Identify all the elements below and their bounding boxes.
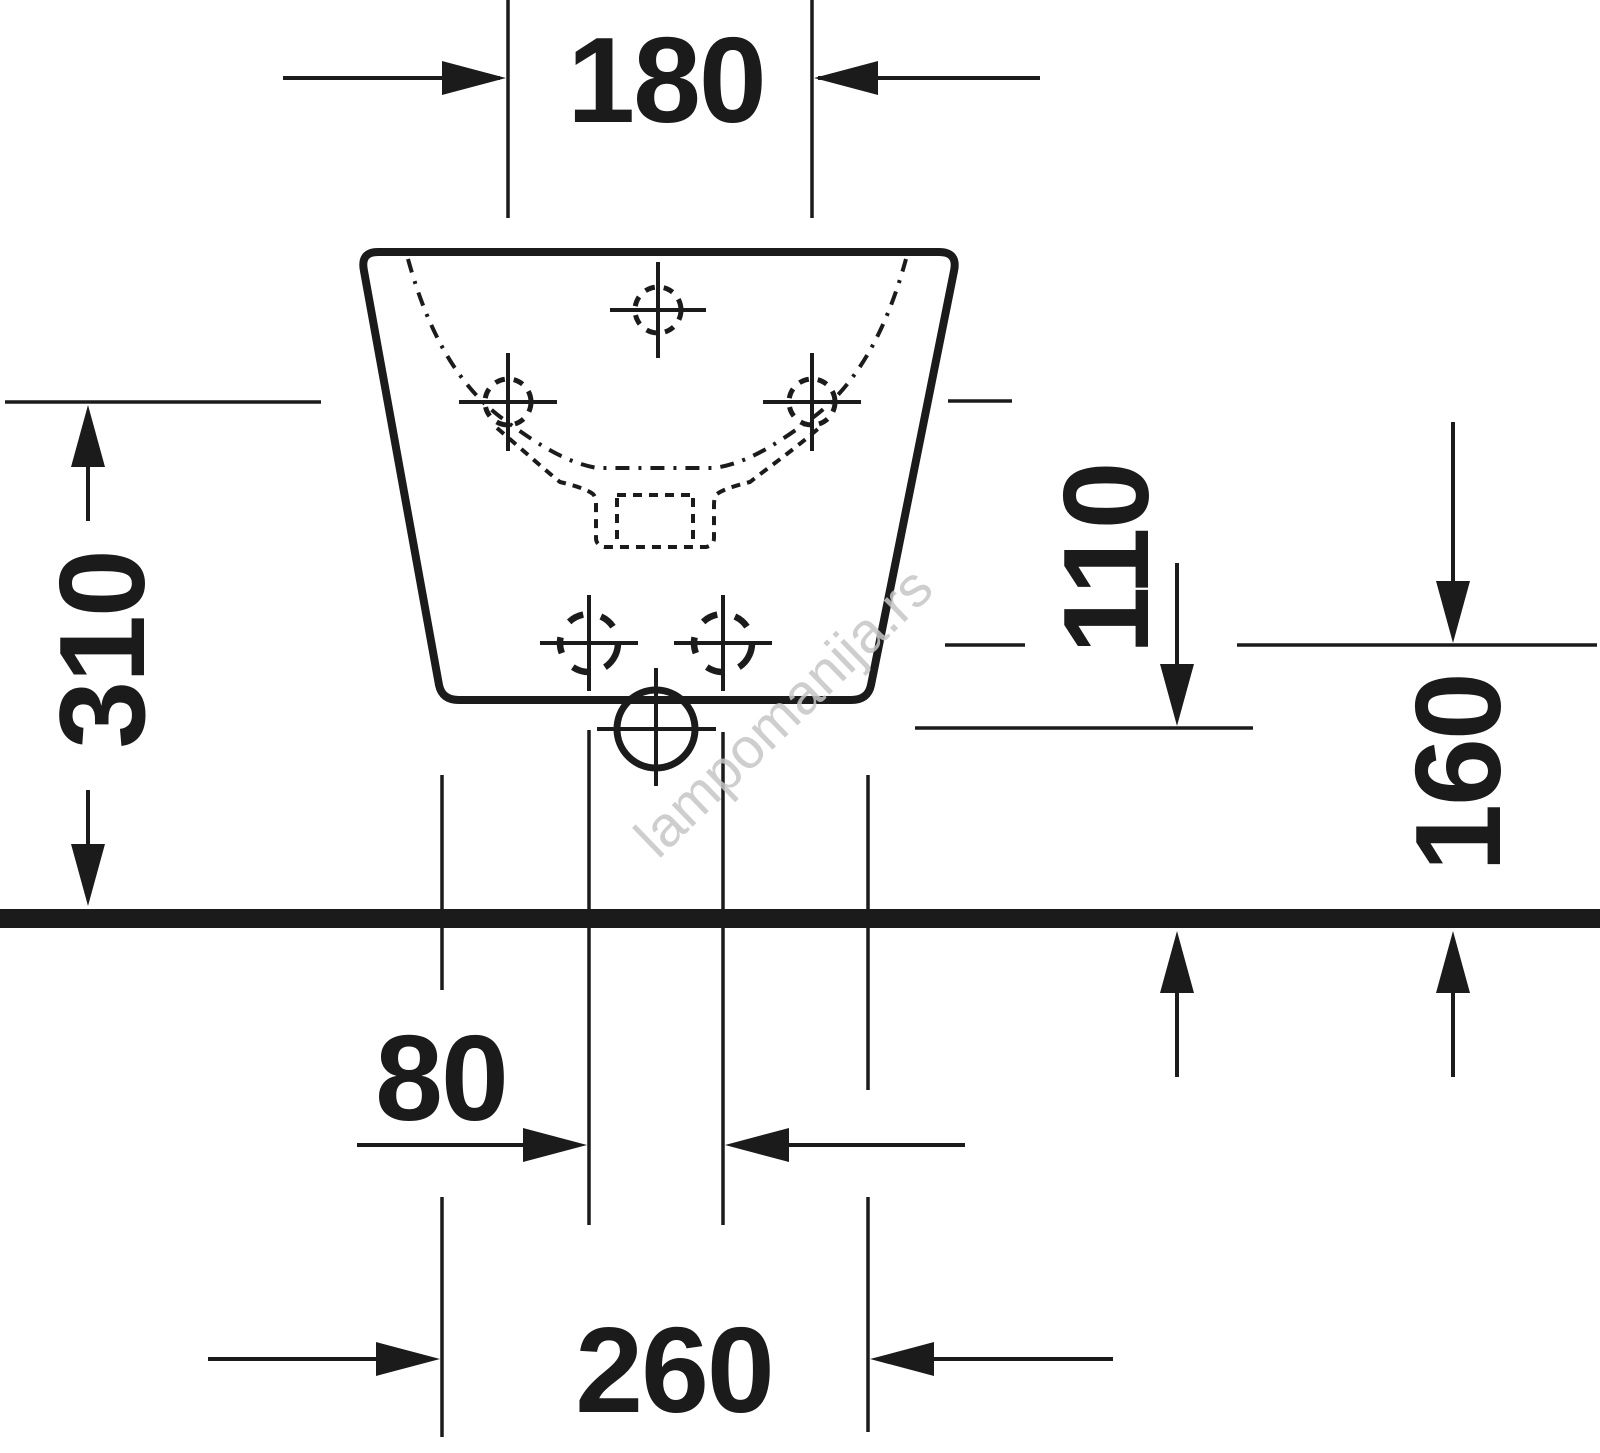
dimension-180: 180: [283, 0, 1040, 218]
dim-110-arrowhead-up-below-floor: [1160, 931, 1194, 993]
dim-110-arrowhead-down: [1160, 664, 1194, 726]
dimension-110: 110: [915, 464, 1253, 1077]
dim-260-arrowhead-left: [376, 1342, 440, 1376]
dim-180-label: 180: [567, 12, 765, 148]
dim-160-arrowhead-down: [1436, 581, 1470, 643]
floor-line: [0, 909, 1600, 928]
dim-310-label: 310: [34, 551, 170, 749]
dim-160-label: 160: [1390, 674, 1526, 872]
dimension-260: 260: [208, 775, 1113, 1438]
dim-260-arrowhead-right: [870, 1342, 934, 1376]
dim-180-arrowhead-right: [814, 61, 878, 95]
dim-160-arrowhead-up-below-floor: [1436, 931, 1470, 993]
dim-260-label: 260: [575, 1302, 773, 1438]
dim-310-arrowhead-up: [71, 405, 105, 467]
dim-310-arrowhead-down: [71, 844, 105, 906]
dim-80-arrowhead-right: [725, 1128, 789, 1162]
dimension-310: 310: [5, 402, 321, 906]
dim-80-label: 80: [375, 1010, 507, 1146]
dim-80-arrowhead-left: [523, 1128, 587, 1162]
dim-110-label: 110: [1038, 464, 1174, 655]
dim-180-arrowhead-left: [442, 61, 506, 95]
technical-drawing-canvas: 180 310 110 160 80: [0, 0, 1600, 1453]
bidet-dimension-drawing: 180 310 110 160 80: [0, 0, 1600, 1453]
